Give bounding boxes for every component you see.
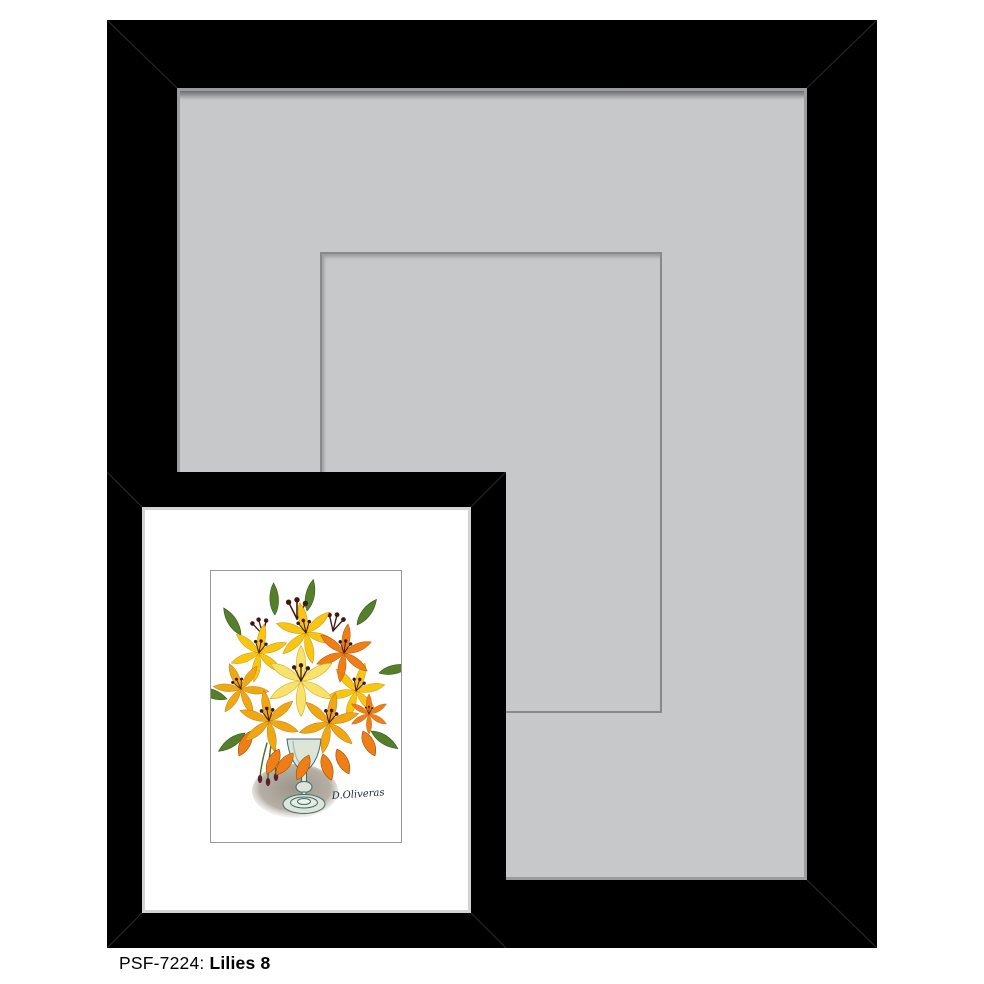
framed-print: D.Oliveras	[107, 472, 506, 948]
caption-code: PSF-7224:	[119, 953, 204, 973]
print-frame-lip: D.Oliveras	[142, 507, 471, 913]
artist-signature: D.Oliveras	[330, 787, 385, 802]
flower-pale-center	[268, 645, 335, 716]
caption-title: Lilies 8	[209, 953, 270, 973]
lily-painting: D.Oliveras	[211, 571, 401, 842]
print-mat: D.Oliveras	[145, 510, 468, 910]
lily-artwork: D.Oliveras	[210, 570, 402, 843]
product-image: D.Oliveras PSF-7224:Lilies 8	[0, 0, 984, 984]
mat-top-shadow	[180, 91, 804, 100]
caption: PSF-7224:Lilies 8	[119, 953, 270, 974]
